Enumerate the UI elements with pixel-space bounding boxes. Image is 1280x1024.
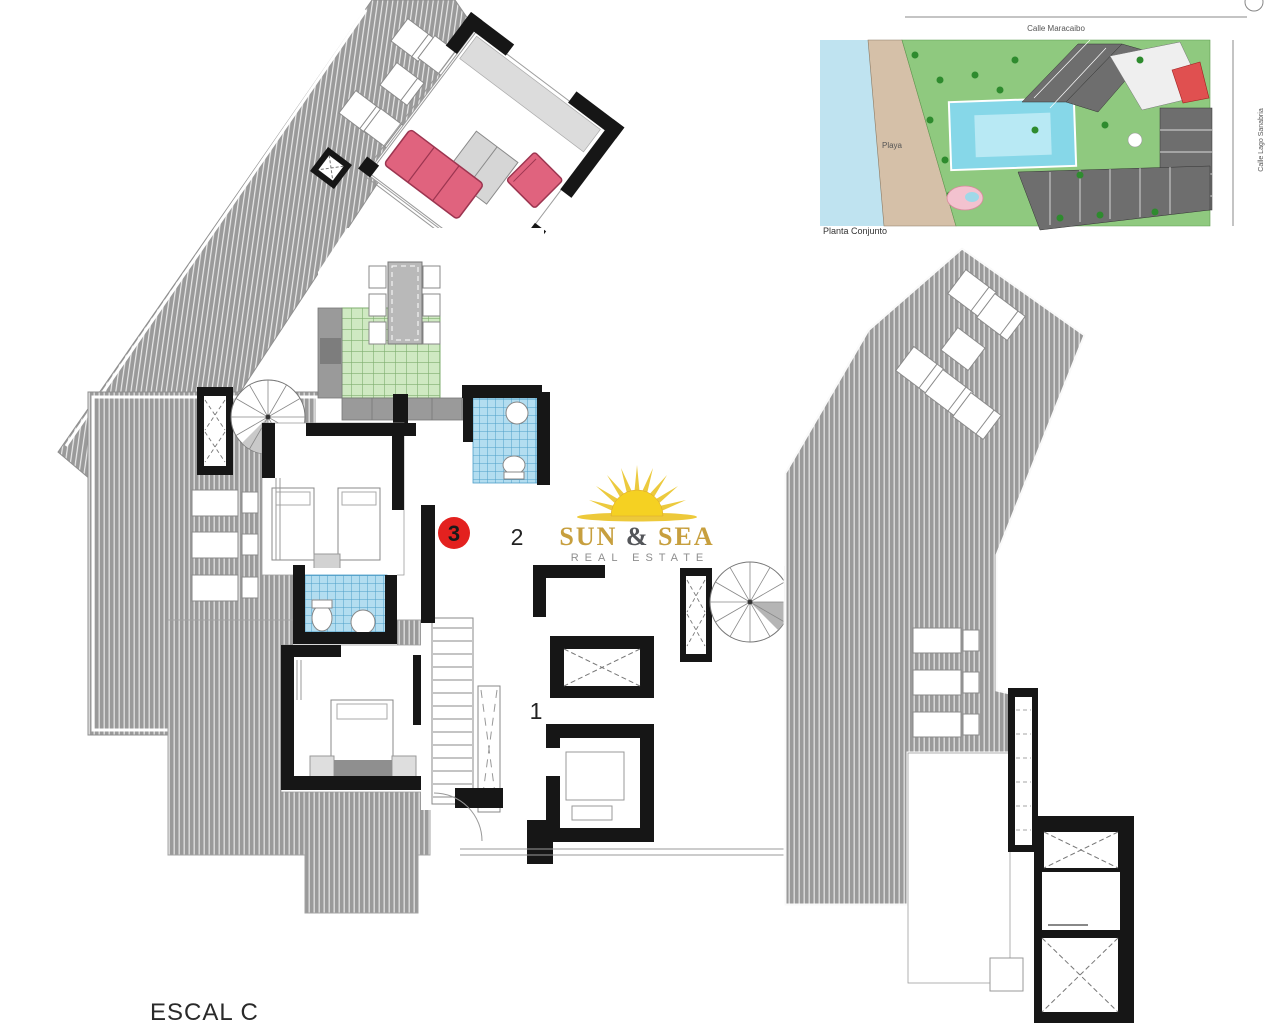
street-right-label: Calle Lago Sanabria [1258,108,1265,172]
floor-plan-page: Calle Maracaibo Playa [0,0,1280,1024]
spiral-staircase-center-icon [710,562,790,642]
sun-icon [577,465,697,522]
logo-word-sun: SUN [559,522,617,551]
logo: SUN & SEA REAL ESTATE [559,465,714,564]
site-plan-inset: Calle Maracaibo Playa [820,0,1265,236]
logo-tagline: REAL ESTATE [571,552,710,564]
lounge-chairs-right-lower [913,628,979,737]
street-top-label: Calle Maracaibo [1027,24,1085,33]
unit-marker-3: 3 [438,517,470,549]
bathroom-ensuite [293,565,397,646]
elevator-x [550,636,654,698]
toilet [312,605,332,631]
sink [351,610,375,634]
store-room [546,724,654,842]
site-pool [949,98,1076,170]
left-unit-plan [58,0,906,913]
bedroom-double [281,645,426,792]
bedroom-twin [262,423,416,575]
logo-word-sea: SEA [658,522,715,551]
unit-1-label: 1 [530,698,543,724]
site-kids-pool [947,186,983,210]
right-unit-plan [785,248,1134,1023]
lounge-chairs-left [192,490,258,601]
elevator-left [197,387,233,475]
beach-label: Playa [882,141,903,150]
shaft-left [680,568,712,662]
logo-ampersand: & [626,522,650,551]
stair-shaft [1008,688,1038,852]
machine-room [1042,872,1120,930]
compass-icon [1245,0,1263,11]
plan-title: ESCAL C [150,999,259,1024]
sink [506,402,528,424]
unit-2-label: 2 [511,524,524,550]
elevator-x [1044,832,1118,868]
patio-box [990,958,1023,991]
staircase-straight [421,505,506,841]
dining-table [369,262,440,344]
toilet [503,456,525,474]
floor-plan-svg: Calle Maracaibo Playa [0,0,1280,1024]
site-plan-caption: Planta Conjunto [823,226,887,236]
logo-text: SUN & SEA [559,522,714,551]
unit-3-label: 3 [448,521,460,546]
bathroom-upper [462,385,550,485]
elevator-x [1042,938,1118,1012]
